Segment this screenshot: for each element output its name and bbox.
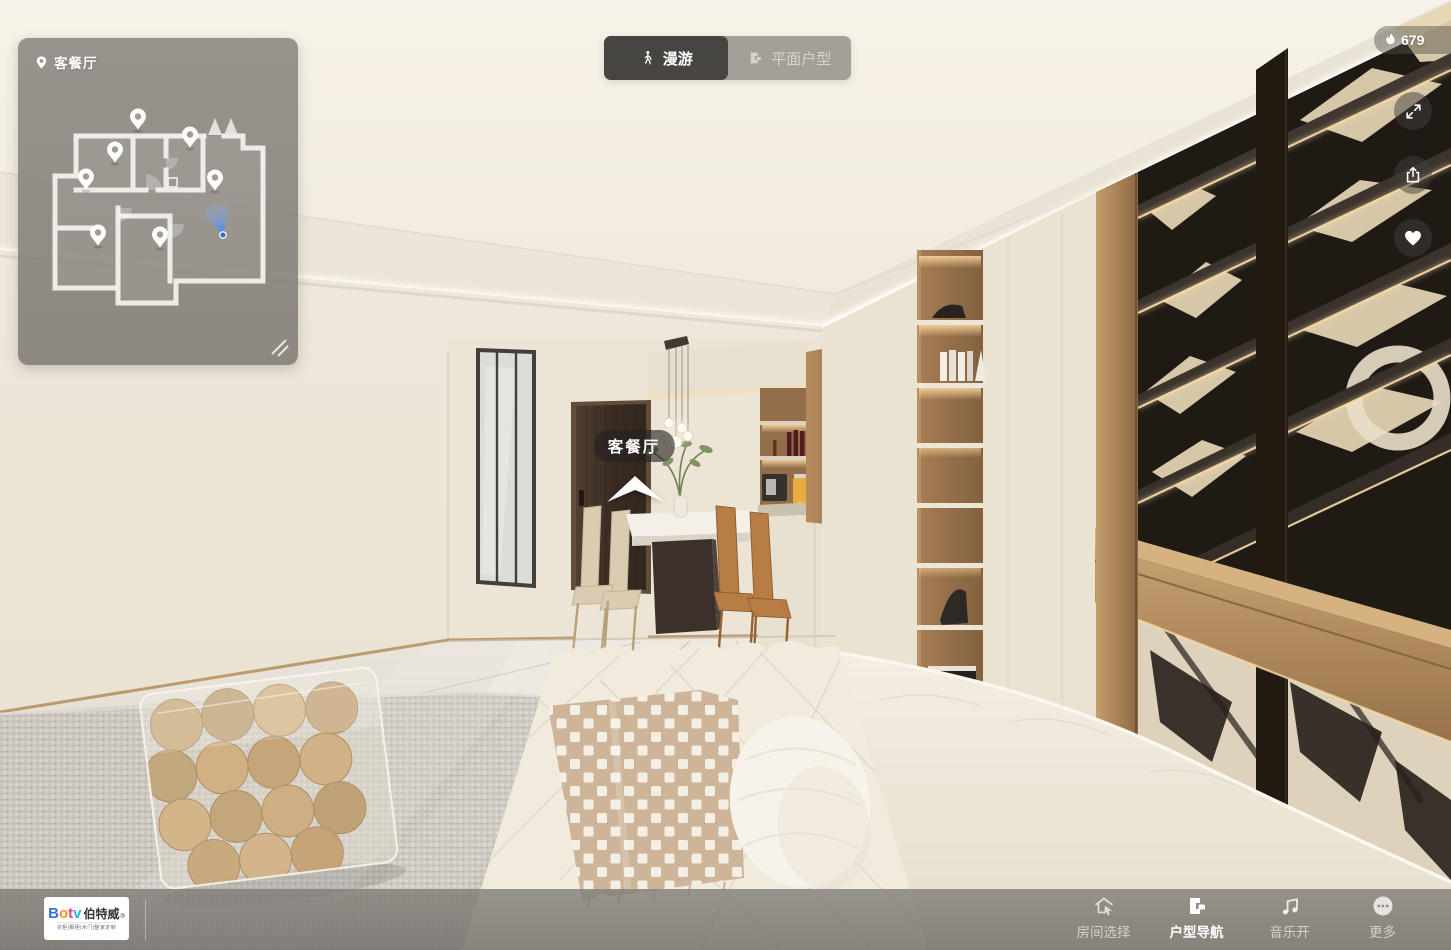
brand-logo: Botv 伯特威 ® 衣柜|橱柜|木门|整家定制 (44, 897, 129, 940)
fullscreen-expand-icon (1404, 102, 1423, 121)
share-button[interactable] (1394, 156, 1432, 194)
fullscreen-button[interactable] (1394, 92, 1432, 130)
share-icon (1403, 165, 1423, 185)
walking-person-icon (639, 49, 656, 68)
logo-cn-name: 伯特威 (83, 908, 119, 920)
hotspot-navigate-arrow[interactable] (606, 475, 664, 505)
logo-letter: v (73, 905, 81, 922)
logo-registered-mark: ® (120, 914, 124, 920)
floorplan-nav-label: 户型导航 (1170, 921, 1224, 941)
favorite-button[interactable] (1394, 219, 1432, 257)
room-select-label: 房间选择 (1077, 921, 1131, 941)
heart-icon (1403, 229, 1423, 247)
minimap-floorplan (18, 38, 298, 365)
logo-letter: o (59, 905, 68, 922)
tab-floor-plan[interactable]: 平面户型 (728, 36, 852, 80)
bottom-toolbar: Botv 伯特威 ® 衣柜|橱柜|木门|整家定制 房间选择 (0, 889, 1451, 950)
more-ellipsis-icon (1371, 894, 1395, 918)
more-button[interactable]: 更多 (1336, 894, 1429, 941)
heat-count: 679 (1401, 32, 1424, 48)
view-mode-tabs: 漫游 平面户型 (604, 36, 851, 80)
flame-icon (1385, 33, 1396, 47)
tab-roam-label: 漫游 (663, 48, 693, 69)
logo-letter: B (48, 905, 59, 922)
resize-handle-icon[interactable] (268, 336, 290, 358)
floorplan-nav-icon (1185, 894, 1209, 918)
music-toggle-button[interactable]: 音乐开 (1243, 894, 1336, 941)
hotspot-room-label[interactable]: 客餐厅 (594, 430, 675, 462)
toolbar-divider (145, 899, 146, 940)
toolbar-nav: 房间选择 户型导航 音 (1057, 894, 1429, 941)
room-select-icon (1092, 894, 1116, 918)
vr-tour-viewer: 客餐厅 客餐厅 (0, 0, 1451, 950)
room-select-button[interactable]: 房间选择 (1057, 894, 1150, 941)
logo-tagline: 衣柜|橱柜|木门|整家定制 (57, 922, 116, 931)
more-label: 更多 (1369, 921, 1396, 941)
tab-floor-plan-label: 平面户型 (771, 48, 831, 69)
heat-counter: 679 (1374, 26, 1451, 54)
tab-roam[interactable]: 漫游 (604, 36, 728, 80)
floorplan-icon (747, 50, 764, 66)
music-toggle-label: 音乐开 (1269, 921, 1310, 941)
music-note-icon (1278, 894, 1302, 918)
floorplan-nav-button[interactable]: 户型导航 (1150, 894, 1243, 941)
minimap-panel[interactable]: 客餐厅 (18, 38, 298, 365)
